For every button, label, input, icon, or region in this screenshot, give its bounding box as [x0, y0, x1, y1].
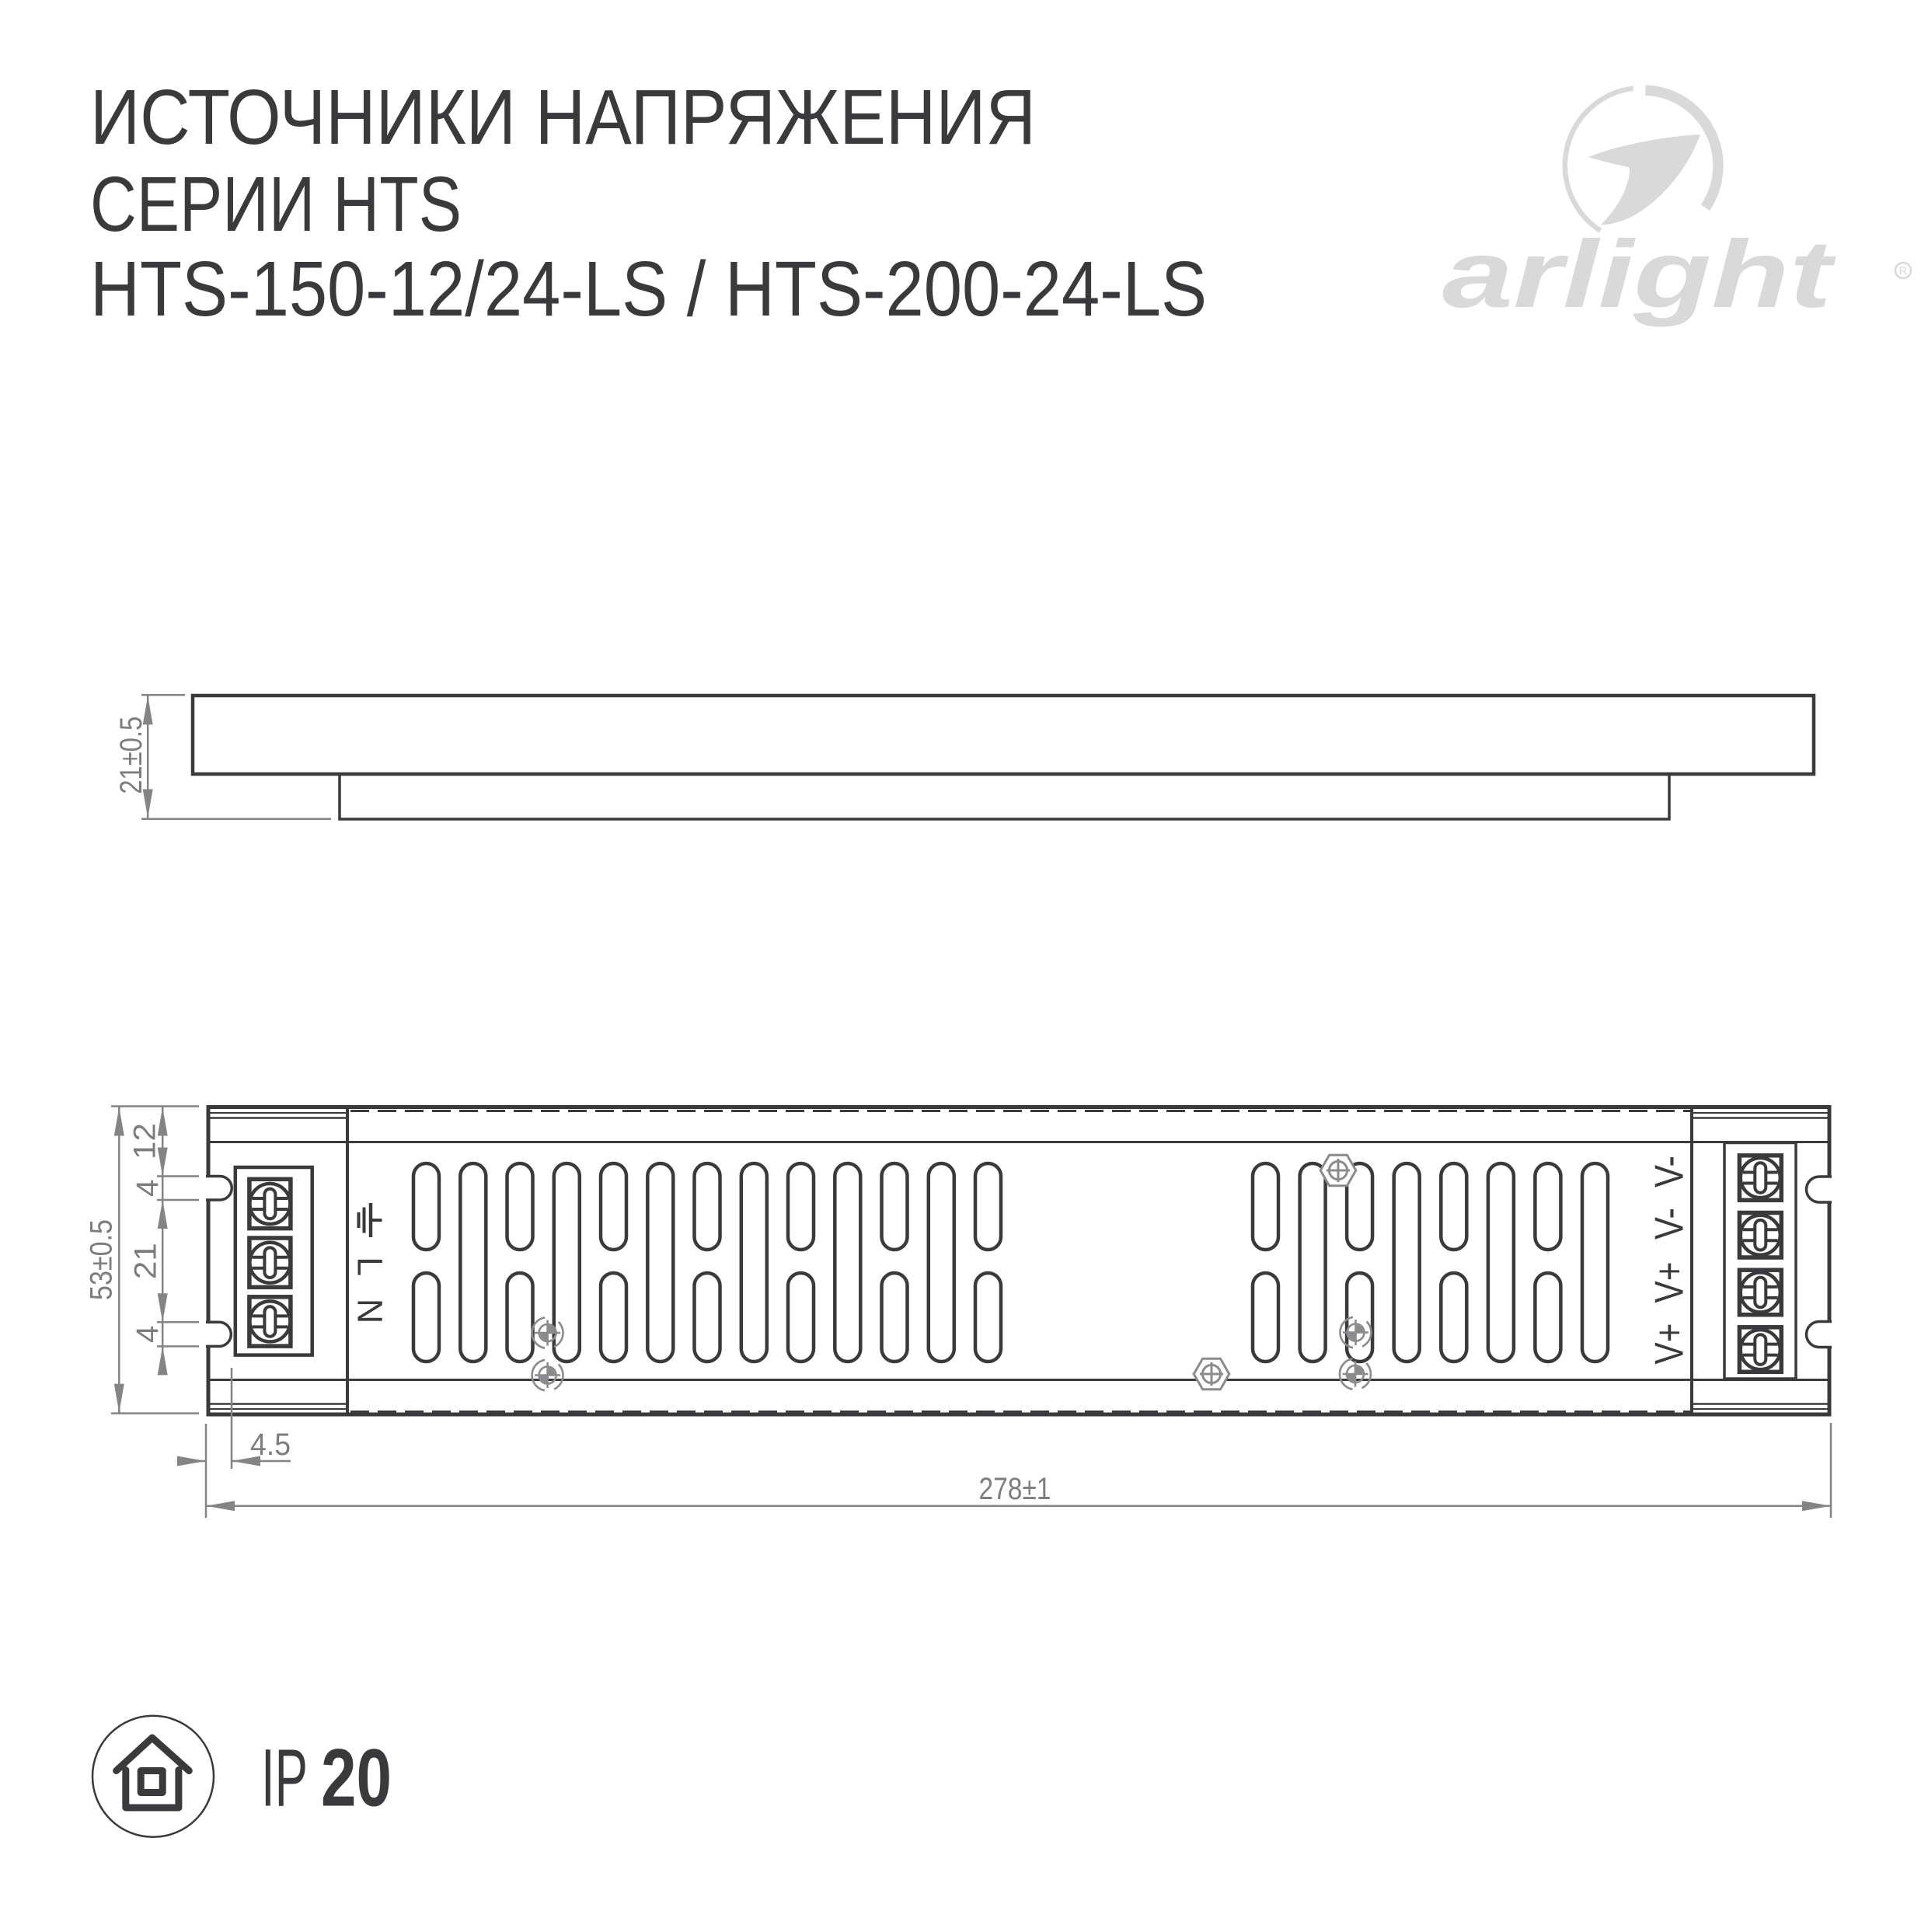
svg-text:arlight: arlight [1442, 221, 1837, 328]
svg-text:21±0.5: 21±0.5 [114, 717, 148, 794]
svg-text:V-: V- [1647, 1156, 1693, 1187]
svg-text:12: 12 [127, 1123, 162, 1160]
svg-text:4: 4 [131, 1180, 165, 1197]
svg-text:V-: V- [1647, 1208, 1693, 1240]
svg-text:21: 21 [129, 1243, 163, 1279]
svg-text:HTS-150-12/24-LS / HTS-200-24-: HTS-150-12/24-LS / HTS-200-24-LS [90, 246, 1207, 333]
svg-text:R: R [1899, 265, 1908, 278]
svg-text:IP20: IP20 [261, 1733, 392, 1824]
svg-text:4.5: 4.5 [250, 1428, 291, 1462]
svg-text:СЕРИИ HTS: СЕРИИ HTS [90, 161, 462, 248]
svg-text:53±0.5: 53±0.5 [85, 1219, 119, 1300]
svg-text:ИСТОЧНИКИ НАПРЯЖЕНИЯ: ИСТОЧНИКИ НАПРЯЖЕНИЯ [90, 74, 1036, 161]
svg-text:V+: V+ [1647, 1262, 1693, 1303]
svg-text:L: L [350, 1257, 390, 1276]
svg-text:278±1: 278±1 [979, 1472, 1051, 1506]
svg-text:4: 4 [131, 1326, 165, 1343]
svg-text:N: N [350, 1299, 390, 1324]
svg-text:V+: V+ [1647, 1323, 1693, 1365]
